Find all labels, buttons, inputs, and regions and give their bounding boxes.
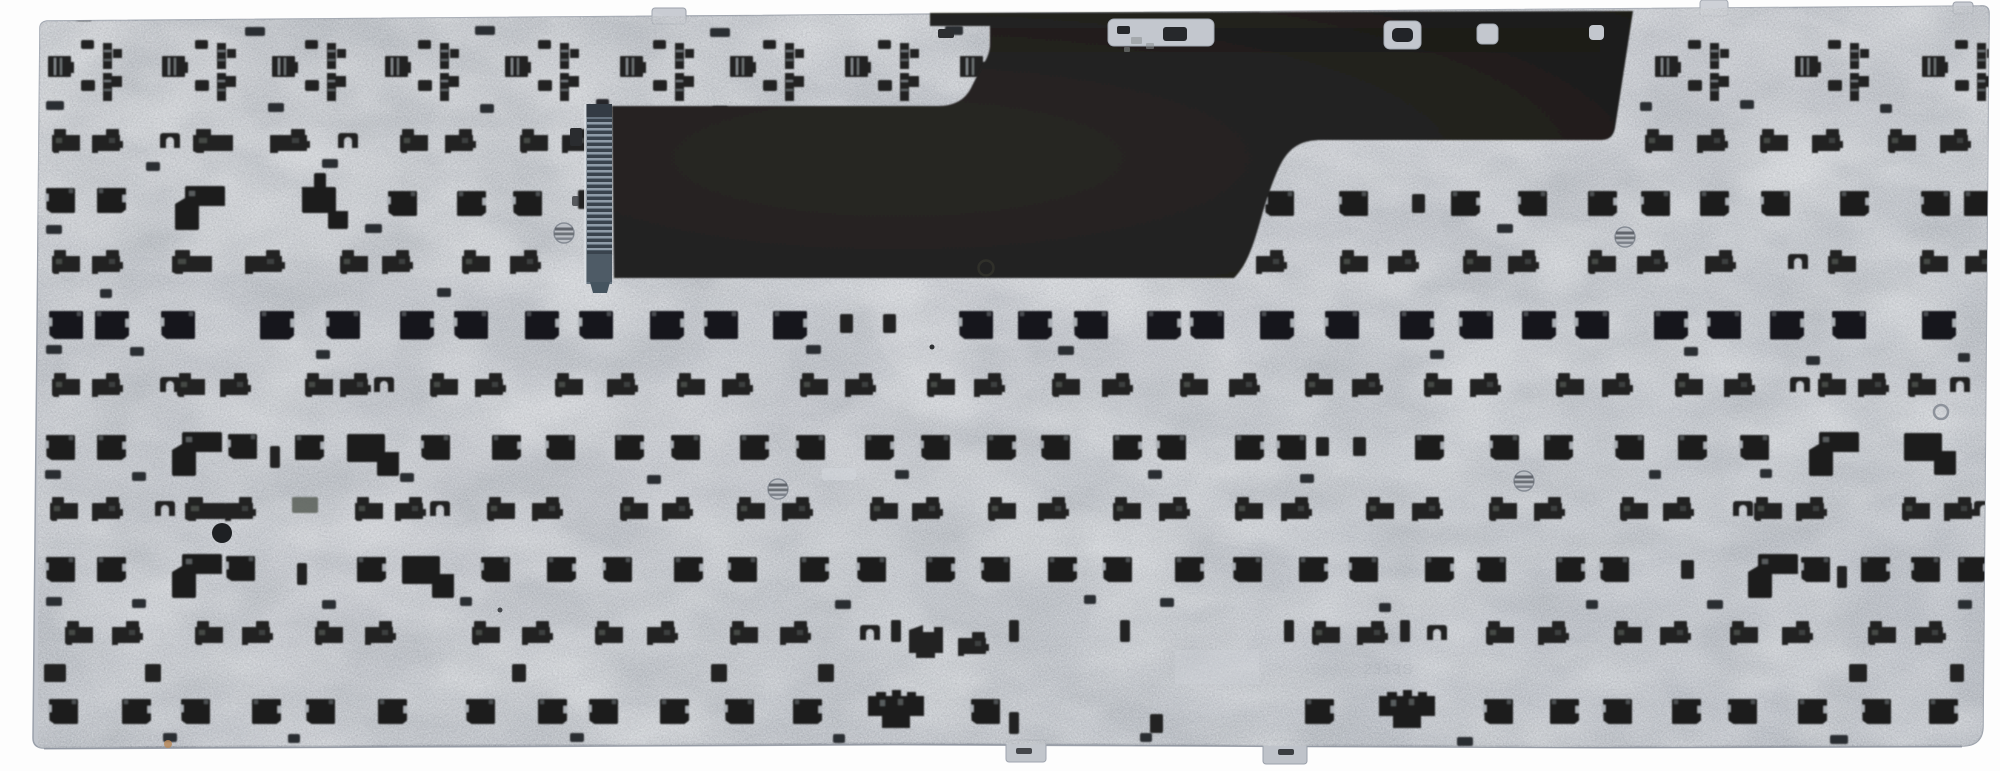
- svg-text:2313S: 2313S: [1363, 661, 1414, 678]
